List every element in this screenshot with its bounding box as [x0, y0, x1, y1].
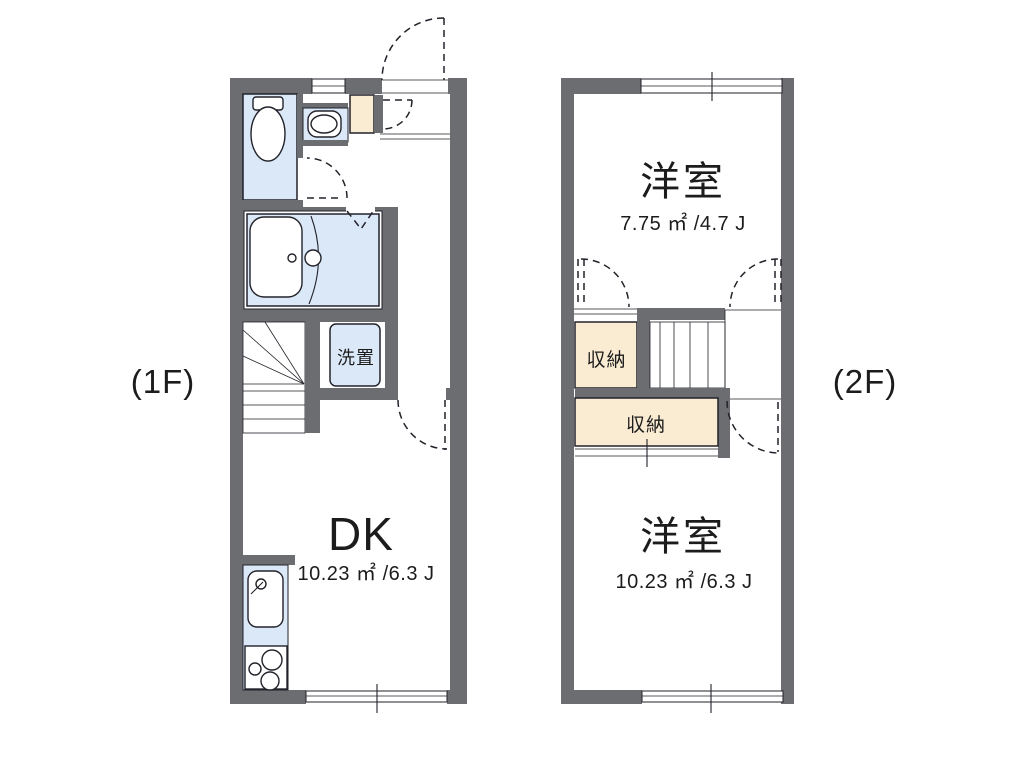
room-label-bedroom-lower: 洋室 [603, 516, 763, 558]
entrance-door-swing-icon [382, 18, 444, 129]
entry-step-line [380, 134, 450, 139]
stair-wall [305, 322, 320, 433]
dk-door-swing-icon [398, 400, 447, 449]
room-label-closet-upper: 収納 [569, 345, 644, 372]
bedroom-door-swing-icon [727, 399, 781, 453]
room-area-dk: 10.23 ㎡ /6.3 J [276, 557, 456, 586]
room-area-bedroom-lower: 10.23 ㎡ /6.3 J [594, 565, 774, 594]
washbasin-room [297, 103, 348, 146]
toilet-door-swing-icon [307, 158, 347, 198]
room-label-washer-space: 洗置 [329, 344, 383, 370]
window-top-2f [641, 72, 782, 101]
room-label-dk: DK [296, 507, 426, 561]
floor-label-1f: (1F) [103, 363, 223, 401]
room-area-bedroom-upper: 7.75 ㎡ /4.7 J [593, 207, 773, 236]
entrance-opening [382, 80, 448, 93]
window-bottom-1f [306, 684, 447, 713]
window-bottom-2f [642, 684, 783, 713]
window-top-1f [312, 79, 345, 93]
closet-door-swings-icon [578, 259, 781, 307]
room-label-bedroom-upper: 洋室 [603, 161, 763, 203]
staircase-1f-icon [243, 322, 305, 433]
staircase-2f-icon [650, 322, 725, 388]
water-heater-icon [350, 95, 383, 133]
toilet-bowl-icon [251, 107, 285, 161]
dk-door [305, 388, 450, 450]
gas-stove-icon [245, 646, 287, 690]
unit-bath [238, 203, 398, 322]
floor-label-2f: (2F) [805, 363, 925, 401]
room-label-closet-lower: 収納 [586, 410, 706, 437]
floorplan-canvas: (1F) DK 10.23 ㎡ /6.3 J 洗置 (2F) 洋室 7.75 ㎡… [0, 0, 1016, 772]
